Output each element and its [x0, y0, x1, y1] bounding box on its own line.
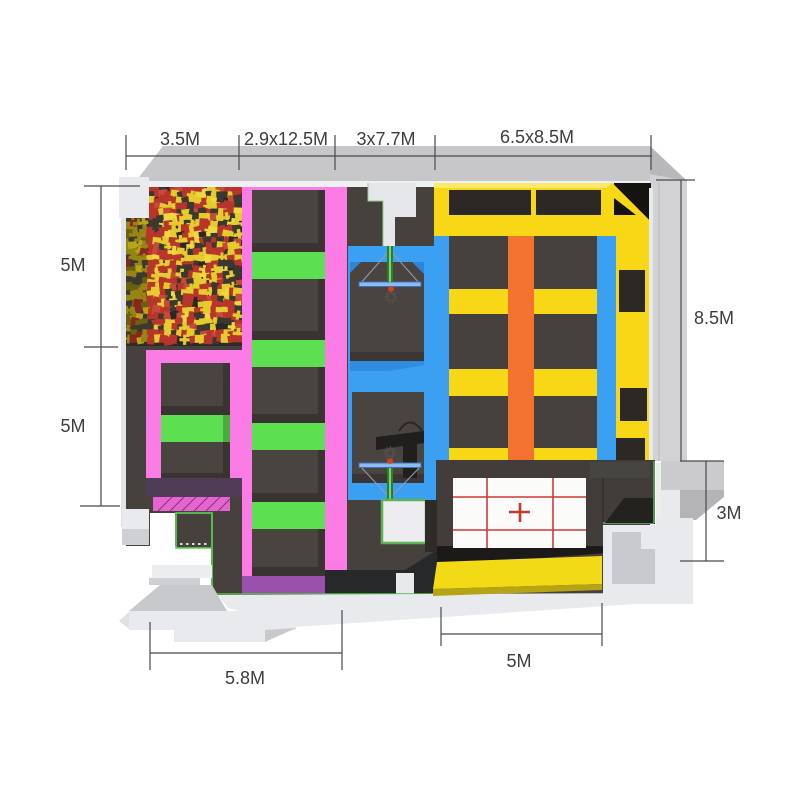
svg-text:5.8M: 5.8M [225, 668, 265, 688]
svg-text:3M: 3M [716, 503, 741, 523]
svg-text:2.9x12.5M: 2.9x12.5M [244, 129, 328, 149]
svg-text:5M: 5M [60, 255, 85, 275]
svg-text:8.5M: 8.5M [694, 308, 734, 328]
svg-text:5M: 5M [506, 651, 531, 671]
svg-text:3x7.7M: 3x7.7M [356, 129, 415, 149]
svg-text:6.5x8.5M: 6.5x8.5M [500, 127, 574, 147]
svg-text:5M: 5M [60, 416, 85, 436]
svg-text:3.5M: 3.5M [160, 129, 200, 149]
